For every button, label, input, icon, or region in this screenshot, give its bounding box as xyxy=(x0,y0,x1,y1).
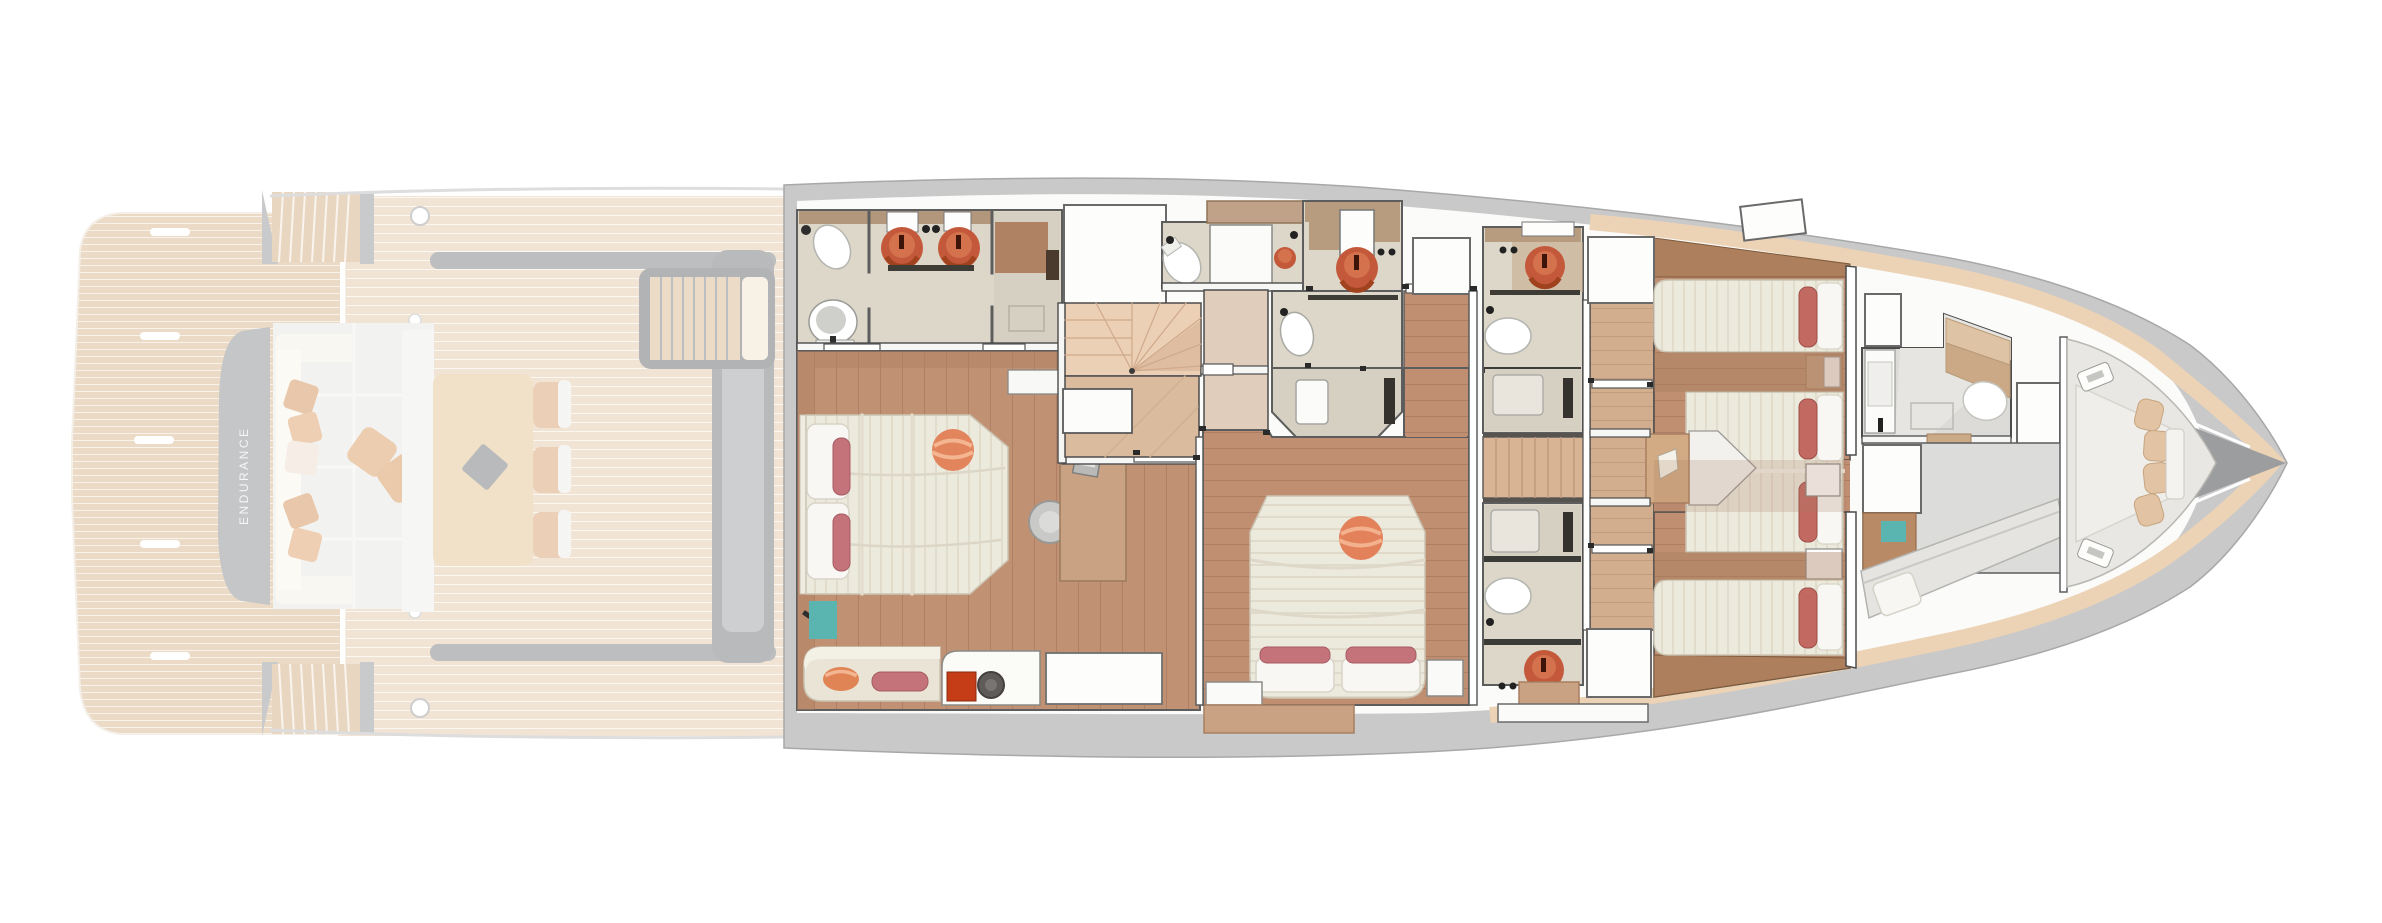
svg-text:ENDURANCE: ENDURANCE xyxy=(237,426,251,525)
